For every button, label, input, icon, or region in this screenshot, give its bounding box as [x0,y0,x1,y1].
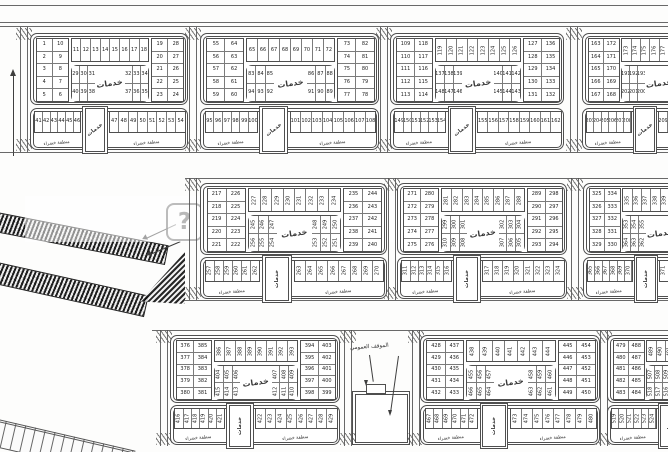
plot-cell: 280 [421,189,437,201]
plot-cell: 292 [528,227,544,239]
plot-number: 15 [112,48,118,53]
plot-cell: 368 [610,261,616,281]
plot-cell: 221 [208,239,226,251]
parking-arrow-line [369,355,374,382]
plot-cell: 144 [503,84,511,101]
plot-cell: 88 [326,66,334,83]
plot-number: 310 [443,238,448,248]
plot-cell: 289 [528,189,544,201]
plot-number: 168 [606,93,616,98]
plot-cell: 62 [225,64,242,76]
plot-cell: 37 [125,84,132,101]
plot-cell: 354 [631,216,638,233]
arrowhead-icon [364,380,368,386]
plot-cell: 35 [141,84,148,101]
services-label: خدمات [465,214,501,253]
plot-cell: 98 [232,112,240,132]
plot-number: 252 [323,238,328,248]
plot-number: 517 [656,386,661,396]
services-label: خدمات [93,64,127,103]
plot-cell: 456 [477,366,485,382]
road-junction-hatch [340,433,356,445]
plot-number: 99 [241,119,247,124]
plot-cell: 309 [451,234,459,251]
plot-number: 142 [512,72,520,77]
plot-number: 50 [140,119,146,124]
plot-cell: 5 [37,89,52,101]
plot-number: 148 [436,90,444,95]
watermark-question-icon: ? [166,203,203,241]
plot-number: 290 [532,205,542,210]
services-cells-left: 353354355364363362 [623,216,646,251]
plot-cell: 45 [66,112,73,132]
plot-number: 128 [528,55,538,60]
plot-number: 381 [198,391,208,396]
services-cells-left: 191192193202201200 [622,66,645,101]
plot-cell: 127 [524,39,541,51]
plot-number: 463 [529,386,534,396]
plot-cell: 164 [589,52,604,64]
plot-number: 166 [591,80,601,85]
plot-cell: 467 [426,409,434,428]
plot-cell: 257 [206,261,214,281]
plot-number: 319 [506,266,511,276]
plot-cell: 459 [537,366,545,382]
green-strip-I: 467468469470471472منطقة خضراءخدمات473474… [420,405,600,445]
plot-number: 203 [587,119,593,124]
plot-number: 229 [275,195,280,205]
plot-cell: 71 [313,39,323,61]
services-cells-left: 245246247256255254 [249,216,277,251]
plot-cell: 157 [499,112,508,132]
plot-cell: 117 [415,52,432,64]
plot-cell: 328 [590,227,605,239]
plot-number: 425 [289,414,294,424]
plot-cell: 101 [291,112,301,132]
plot-cell: 330 [605,239,620,251]
plot-cell: 415 [215,383,223,399]
road-vertical [412,330,420,446]
plot-cell: 460 [546,366,554,382]
plot-cell: 233 [318,189,328,211]
plot-cell: 338 [651,189,659,211]
plot-number: 125 [502,45,507,55]
green-strip-B: 9596979899100منطقة خضراءخدمات10110210310… [200,108,379,150]
plot-number: 479 [578,414,583,424]
plot-number: 207 [617,119,623,124]
plot-number: 96 [215,119,221,124]
plot-cell: 162 [551,112,560,132]
plot-number: 307 [500,238,505,248]
plot-number: 123 [481,45,486,55]
plot-cell: 108 [366,112,376,132]
plot-number: 441 [508,346,513,356]
plot-number: 316 [445,266,450,276]
strip-services-label: خدمات [456,257,478,300]
plot-number: 255 [261,238,266,248]
green-area-label: منطقة خضراء [394,138,444,147]
plot-number: 458 [529,369,534,379]
plot-cell: 16 [120,39,129,61]
plot-number: 164 [591,55,601,60]
plot-cell: 408 [280,366,288,382]
plot-number: 440 [496,346,501,356]
right-pairs: 394403395402396401397400398399 [300,340,336,400]
plot-cell: 452 [577,365,594,376]
plot-number: 162 [551,119,560,124]
plot-cell: 400 [319,376,335,387]
plot-cell: 12 [81,39,90,61]
plot-number: 423 [268,414,273,424]
plot-cell: 89 [326,84,334,101]
plot-cell: 431 [427,376,444,387]
plot-cell: 518 [647,383,654,399]
plot-cell: 335 [623,189,631,211]
plot-number: 453 [581,356,591,361]
plot-cell: 265 [317,261,327,281]
strip-left-cells: 467468469470471472 [425,408,479,429]
plot-cell: 369 [618,261,624,281]
right-pairs: 127136128135129134130133131132 [523,38,559,102]
plot-number: 63 [231,55,237,60]
services-label: خدمات [238,364,274,401]
plot-cell: 96 [214,112,222,132]
plot-number: 464 [488,386,493,396]
plot-number: 155 [478,119,487,124]
plot-cell: 165 [589,64,604,76]
top-row: 281282283284285286287288 [441,188,525,212]
plot-number: 245 [251,220,256,230]
plot-cell: 413 [233,383,241,399]
plot-number: 416 [177,414,182,424]
plot-cell: 39 [80,84,87,101]
plot-number: 444 [546,346,551,356]
plot-cell: 455 [467,366,475,382]
plot-number: 380 [180,391,190,396]
plot-cell: 387 [225,341,234,361]
plot-cell: 2 [37,52,52,64]
plot-number: 87 [317,72,323,77]
plot-number: 62 [231,67,237,72]
plot-number: 318 [495,266,500,276]
plot-cell: 304 [516,216,524,233]
plot-cell: 306 [507,234,515,251]
plot-cell: 124 [489,39,499,61]
plot-cell: 97 [223,112,231,132]
plot-number: 17 [131,48,137,53]
strip-left-cells: 9596979899100 [205,111,258,133]
plot-number: 521 [628,414,633,424]
plot-cell: 223 [227,227,245,239]
plot-block-F: 2712802722792732782742772752762812822832… [397,183,567,255]
plot-cell: 55 [207,39,224,51]
plot-cell: 205 [602,112,608,132]
plot-cell: 109 [397,39,414,51]
plot-cell: 20 [152,52,167,64]
plot-cell: 523 [642,409,648,428]
plot-number: 445 [563,344,573,349]
plot-cell: 519 [612,409,618,428]
plot-number: 230 [286,195,291,205]
plot-cell: 517 [655,383,662,399]
plot-cell: 488 [629,341,644,352]
plot-number: 26 [173,67,179,72]
plot-cell: 153 [429,112,436,132]
services-block: 299300301310309308خدمات30230330430730630… [441,215,525,252]
plot-cell: 137 [436,66,444,83]
road-vertical [380,27,388,152]
plot-number: 404 [216,369,221,379]
plot-number: 93 [257,90,263,95]
plot-number: 49 [130,119,136,124]
green-area-label: منطقة خضراء [205,287,259,297]
top-row: 227228229230231232233234 [248,188,341,212]
plot-number: 244 [368,192,378,197]
plot-number: 477 [557,414,562,424]
green-area-label: منطقة خضراء [34,139,79,148]
plot-cell: 324 [554,261,563,281]
plot-number: 414 [225,386,230,396]
plot-number: 250 [333,220,338,230]
plot-number: 462 [539,386,544,396]
plot-number: 305 [518,238,523,248]
plot-number: 140 [494,72,502,77]
plot-number: 523 [642,414,647,424]
plot-cell: 490 [657,341,665,361]
plot-number: 335 [625,195,630,205]
plot-number: 135 [546,55,556,60]
plot-cell: 367 [603,261,609,281]
plot-cell: 169 [604,77,619,89]
plot-cell: 423 [266,409,275,428]
services-label: خدمات [275,214,314,253]
plot-cell: 353 [623,216,630,233]
plot-cell: 134 [542,64,559,76]
plot-cell: 438 [467,341,479,361]
plot-number: 484 [631,391,641,396]
plot-number: 397 [305,379,315,384]
plot-cell: 209 [659,112,667,132]
plot-cell: 476 [543,409,553,428]
plot-cell: 145 [494,84,502,101]
green-strip-F: 311312313314315316منطقة خضراءخدمات317318… [397,257,567,299]
plot-cell: 200 [638,84,645,101]
plot-number: 38 [89,90,95,95]
plot-cell: 6 [53,89,68,101]
plot-cell: 29 [72,66,79,83]
plot-cell: 480 [587,409,597,428]
left-pairs: 376385377384378383379382380381 [176,340,212,400]
plot-cell: 42 [43,112,50,132]
plot-number: 219 [212,217,222,222]
services-block: 293031403938خدمات323334373635 [71,65,149,102]
plot-number: 339 [662,195,667,205]
plot-cell: 47 [110,112,118,132]
plot-cell: 322 [534,261,543,281]
plot-number: 141 [503,72,511,77]
plot-cell: 54 [176,112,184,132]
plot-number: 312 [412,266,417,276]
plot-number: 470 [453,414,458,424]
plot-number: 382 [198,379,208,384]
plot-cell: 63 [225,52,242,64]
plot-cell: 122 [468,39,478,61]
plot-cell: 397 [301,376,317,387]
plot-cell: 70 [302,39,312,61]
plot-number: 289 [532,192,542,197]
plot-number: 327 [592,217,602,222]
plot-number: 364 [624,238,629,248]
plot-number: 47 [111,119,117,124]
plot-cell: 288 [515,189,524,211]
plot-cell: 68 [280,39,290,61]
plot-cell: 293 [528,239,544,251]
plot-number: 101 [291,119,301,124]
plot-number: 200 [638,90,645,95]
plot-number: 519 [613,414,618,424]
plot-cell: 383 [194,365,210,376]
plot-cell: 176 [650,39,658,61]
plot-number: 449 [563,391,573,396]
plot-cell: 329 [590,239,605,251]
plot-number: 254 [270,238,275,248]
plot-cell: 246 [259,216,268,233]
plot-number: 262 [253,266,258,276]
plot-cell: 303 [507,216,515,233]
plot-number: 476 [546,414,551,424]
plot-number: 221 [212,243,222,248]
plot-cell: 300 [451,216,459,233]
plot-number: 12 [83,48,89,53]
green-strip-A: 414243444546منطقة خضراءخدمات474849505152… [30,108,188,150]
plot-number: 4 [43,80,46,85]
plot-cell: 119 [436,39,446,61]
left-pairs: 11029384756 [36,38,69,102]
plot-cell: 238 [344,227,362,239]
plot-number: 393 [290,346,295,356]
plot-cell: 430 [427,365,444,376]
plot-cell: 74 [338,52,355,64]
services-label: خدمات [643,64,668,103]
plot-number: 295 [549,230,559,235]
plot-number: 176 [652,45,657,55]
plot-cell: 266 [328,261,338,281]
plot-number: 435 [450,367,460,372]
plot-number: 396 [305,367,315,372]
plot-number: 437 [450,344,460,349]
plot-number: 430 [431,367,441,372]
plot-number: 299 [443,220,448,230]
plot-cell: 28 [168,39,183,51]
plot-number: 267 [342,266,347,276]
plot-number: 297 [549,205,559,210]
plot-number: 317 [485,266,490,276]
plot-number: 438 [471,346,476,356]
plot-number: 157 [499,119,508,124]
plot-cell: 311 [402,261,409,281]
plot-cell: 21 [152,64,167,76]
plot-cell: 92 [266,84,274,101]
plot-cell: 203 [587,112,593,132]
plot-cell: 283 [463,189,472,211]
plot-cell: 331 [605,227,620,239]
plot-cell: 56 [207,52,224,64]
plot-number: 249 [323,220,328,230]
plot-cell: 152 [421,112,428,132]
plot-cell: 36 [133,84,140,101]
plot-cell: 58 [207,77,224,89]
plot-number: 117 [418,55,428,60]
plot-number: 82 [362,42,368,47]
plot-cell: 401 [319,365,335,376]
plot-number: 20 [156,55,162,60]
plot-cell: 22 [152,77,167,89]
green-area-label: منطقة خضراء [401,287,450,296]
plot-cell: 462 [537,383,545,399]
plot-cell: 225 [227,202,245,214]
plot-number: 377 [180,356,190,361]
plot-cell: 192 [630,66,637,83]
plot-number: 151 [412,119,419,124]
plot-number: 428 [319,414,324,424]
plot-number: 475 [535,414,540,424]
plot-number: 174 [633,45,638,55]
plot-cell: 140 [494,66,502,83]
plot-number: 271 [407,192,417,197]
plot-cell: 65 [247,39,257,61]
plot-cell: 337 [642,189,650,211]
plot-cell: 231 [295,189,305,211]
plot-number: 471 [462,414,467,424]
plot-number: 9 [59,55,62,60]
plot-number: 322 [536,266,541,276]
plot-cell: 332 [605,214,620,226]
plot-cell: 382 [194,376,210,387]
plot-cell: 264 [306,261,316,281]
plot-block-J: 4794884804874814864824854834844894904914… [607,335,668,403]
plot-number: 248 [314,220,319,230]
plot-cell: 366 [595,261,601,281]
plot-cell: 484 [629,388,644,399]
plot-cell: 149 [395,112,402,132]
plot-cell: 173 [622,39,630,61]
plot-cell: 224 [227,214,245,226]
plot-number: 266 [331,266,336,276]
plot-cell: 174 [632,39,640,61]
plot-number: 405 [225,369,230,379]
plot-number: 233 [321,195,326,205]
strip-left-zone: 9596979899100منطقة خضراء [205,111,256,147]
services-cells-left: 293031403938 [72,66,96,101]
plot-number: 28 [173,42,179,47]
parking-label: الموقف العمومي [350,343,389,352]
strip-services-label: خدمات [482,405,506,446]
right-pairs: 235244236243237242238241239240 [343,188,382,252]
strip-left-zone: 149150151152153154منطقة خضراء [394,111,444,147]
plot-number: 32 [125,72,131,77]
plot-number: 137 [436,72,444,77]
plot-number: 472 [471,414,476,424]
plot-number: 370 [626,266,631,276]
plot-number: 401 [322,367,332,372]
plot-number: 366 [596,266,601,276]
strip-services-square: خدمات [259,106,288,154]
left-pairs: 217226218225219224220223221222 [207,188,246,252]
road-line [0,5,668,6]
plot-number: 391 [269,346,274,356]
plot-number: 45 [66,119,72,124]
plot-number: 208 [624,119,630,124]
